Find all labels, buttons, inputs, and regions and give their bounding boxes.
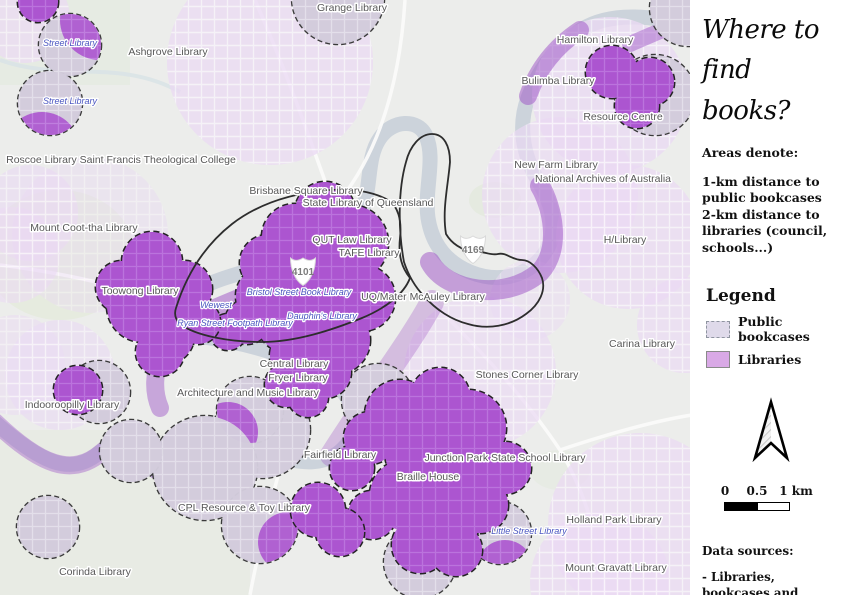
library-label: Holland Park Library [566, 514, 662, 526]
library-label: Fairfield Library [304, 449, 377, 461]
street-library-label: Street Library [43, 96, 98, 106]
library-label: National Archives of Australia [535, 173, 671, 185]
library-label: QUT Law Library [312, 234, 392, 246]
street-library-label: Little Street Library [491, 526, 567, 536]
library-label: Indooroopilly Library [25, 399, 120, 411]
library-label: Mount Gravatt Library [565, 562, 667, 574]
bookcase-buffer [100, 420, 162, 482]
library-label: State Library of Queensland [303, 197, 434, 209]
map-layout-page: 41014169 Grange LibraryStreet LibraryAsh… [0, 0, 842, 595]
legend-item-label: Libraries [738, 352, 801, 367]
bookcases-swatch-icon [706, 321, 730, 338]
north-arrow-icon [748, 396, 834, 466]
library-buffer [430, 524, 482, 576]
data-sources-heading: Data sources: [702, 544, 834, 558]
scale-label-1km: 1 km [779, 484, 813, 498]
library-label: Fryer Library [268, 372, 328, 384]
library-label: Architecture and Music Library [177, 387, 320, 399]
scale-label-0: 0 [721, 484, 729, 498]
road-shield-number: 4101 [292, 267, 315, 278]
legend-item-label: Public bookcases [738, 314, 834, 344]
library-label: Grange Library [317, 2, 388, 14]
street-library-label: Ryan Street Footpath Library [177, 318, 293, 328]
library-label: Brisbane Square Library [249, 185, 363, 197]
legend-item: Public bookcases [706, 314, 834, 344]
library-label: Junction Park State School Library [424, 452, 586, 464]
library-label: H/Library [604, 234, 647, 246]
library-label: Bulimba Library [522, 75, 596, 87]
scale-label-05: 0.5 [747, 484, 768, 498]
library-label: Roscoe Library Saint Francis Theological… [6, 154, 236, 166]
library-buffer [316, 508, 364, 556]
street-library-label: Street Library [43, 38, 98, 48]
bookcase-buffer [17, 496, 79, 558]
map-canvas: 41014169 Grange LibraryStreet LibraryAsh… [0, 0, 690, 595]
scale-bar: 0 0.5 1 km [724, 484, 804, 518]
library-buffer [479, 442, 531, 494]
library-label: Braille House [397, 471, 460, 483]
areas-denote-body: 1-km distance to public bookcases 2-km d… [702, 174, 834, 257]
library-label: UQ/Mater McAuley Library [361, 291, 485, 303]
scale-bar-segments [724, 502, 790, 511]
library-label: Ashgrove Library [128, 46, 208, 58]
library-label: Toowong Library [101, 285, 179, 297]
library-label: Carina Library [609, 338, 676, 350]
library-buffer [136, 328, 184, 376]
data-sources-body: - Libraries, bookcases and postcodes fro… [702, 570, 834, 595]
map-svg: 41014169 Grange LibraryStreet LibraryAsh… [0, 0, 690, 595]
street-library-label: Dauphin's Library [287, 311, 357, 321]
library-label: CPL Resource & Toy Library [178, 502, 311, 514]
road-shield-number: 4169 [462, 245, 485, 256]
page-title: Where to find books? [702, 10, 834, 131]
library-label: Stones Corner Library [476, 369, 579, 381]
library-label: Corinda Library [59, 566, 132, 578]
side-panel: Where to find books? Areas denote: 1-km … [690, 0, 842, 595]
libraries-swatch-icon [706, 351, 730, 368]
library-label: Hamilton Library [557, 34, 634, 46]
library-label: TAFE Library [338, 247, 400, 259]
scale-bar-empty [757, 503, 790, 510]
street-library-label: Wewest [200, 300, 232, 310]
legend-heading: Legend [706, 286, 834, 306]
library-label: Mount Coot-tha Library [30, 222, 138, 234]
library-label: Resource Centre [583, 111, 663, 123]
scale-bar-filled [725, 503, 757, 510]
library-label: Central Library [260, 358, 330, 370]
street-library-label: Bristol Street Book Library [247, 287, 352, 297]
legend-item: Libraries [706, 351, 834, 368]
library-label: New Farm Library [514, 159, 598, 171]
areas-denote-heading: Areas denote: [702, 145, 834, 160]
legend: Public bookcasesLibraries [702, 314, 834, 368]
data-sources: Data sources: - Libraries, bookcases and… [702, 544, 834, 595]
